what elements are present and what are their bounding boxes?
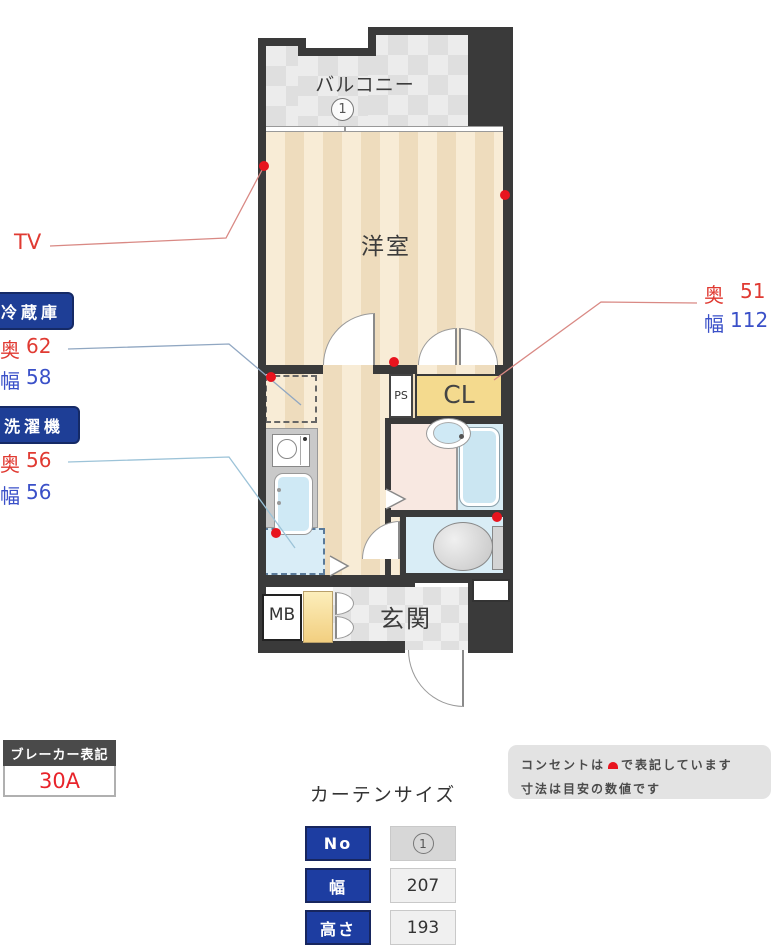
curtain-row-width: 幅 207 xyxy=(305,868,456,903)
width-label: 幅 xyxy=(0,480,26,509)
closet-depth-row: 奥 51 xyxy=(704,279,765,308)
depth-value: 56 xyxy=(26,448,51,477)
legend-note-box: コンセントはで表記しています 寸法は目安の数値です xyxy=(508,745,771,799)
depth-label: 奥 xyxy=(0,448,26,477)
pointer-line-closet xyxy=(494,302,697,380)
width-label: 幅 xyxy=(0,365,26,394)
fridge-depth-row: 奥 62 xyxy=(0,334,51,363)
breaker-table: ブレーカー表記 30A xyxy=(3,740,116,797)
depth-label: 奥 xyxy=(0,334,26,363)
living-room-label: 洋室 xyxy=(336,227,436,261)
outlet-icon xyxy=(271,528,281,538)
pipe-shaft-label: PS xyxy=(389,389,413,402)
pointer-line-tv xyxy=(50,170,262,246)
curtain-table-title: カーテンサイズ xyxy=(300,780,466,807)
wall xyxy=(400,515,406,575)
fridge-space-dashed-box xyxy=(265,375,317,423)
curtain-row-no: No 1 xyxy=(305,826,456,861)
meter-box-label: MB xyxy=(262,605,302,625)
curtain-no-header: No xyxy=(305,826,371,861)
depth-label: 奥 xyxy=(704,279,730,308)
wall xyxy=(385,418,391,490)
curtain-width-header: 幅 xyxy=(305,868,371,903)
breaker-value: 30A xyxy=(3,766,116,797)
vanity-faucet-icon xyxy=(459,434,464,439)
curtain-height-header: 高さ xyxy=(305,910,371,945)
tv-label: TV xyxy=(14,230,41,254)
washer-badge: 洗濯機 xyxy=(0,406,80,444)
legend-line-1: コンセントはで表記しています xyxy=(521,753,758,777)
wall xyxy=(298,48,376,56)
curtain-width-cell: 207 xyxy=(390,868,456,903)
outlet-icon xyxy=(608,762,618,769)
closet-label: CL xyxy=(415,380,503,409)
outlet-icon xyxy=(389,357,399,367)
wall xyxy=(495,365,503,374)
width-value: 112 xyxy=(730,308,768,337)
breaker-title: ブレーカー表記 xyxy=(3,740,116,766)
washer-depth-row: 奥 56 xyxy=(0,448,51,477)
shoe-cabinet xyxy=(303,591,333,643)
balcony-window-divider xyxy=(344,126,346,132)
stove-knob-icon xyxy=(303,437,307,441)
curtain-row-height: 高さ 193 xyxy=(305,910,456,945)
balcony-curtain-number: 1 xyxy=(331,98,354,121)
kitchen-sink xyxy=(275,474,312,534)
width-label: 幅 xyxy=(704,308,730,337)
outlet-icon xyxy=(259,161,269,171)
entrance-door-arc xyxy=(408,650,464,707)
wall xyxy=(258,575,415,587)
width-value: 58 xyxy=(26,365,51,394)
entrance-label: 玄関 xyxy=(368,599,444,634)
stove-burner-icon xyxy=(277,439,297,459)
curtain-table: No 1 幅 207 高さ 193 xyxy=(305,826,456,951)
utility-box xyxy=(472,579,510,602)
curtain-height-cell: 193 xyxy=(390,910,456,945)
curtain-number: 1 xyxy=(413,833,434,854)
legend-line-2: 寸法は目安の数値です xyxy=(521,777,758,801)
depth-value: 51 xyxy=(740,279,765,308)
legend-line1-after: で表記しています xyxy=(621,758,733,772)
closet-width-row: 幅 112 xyxy=(704,308,768,337)
outlet-icon xyxy=(492,512,502,522)
fridge-badge: 冷蔵庫 xyxy=(0,292,74,330)
toilet-bowl xyxy=(433,522,493,571)
balcony-label: バルコニー xyxy=(290,70,440,97)
vanity-basin xyxy=(433,422,464,444)
curtain-no-cell: 1 xyxy=(390,826,456,861)
stove-divider xyxy=(300,436,301,465)
wall xyxy=(468,27,513,130)
outlet-icon xyxy=(500,190,510,200)
fridge-width-row: 幅 58 xyxy=(0,365,51,394)
outlet-icon xyxy=(266,372,276,382)
wall xyxy=(368,27,472,35)
wall xyxy=(258,38,266,653)
width-value: 56 xyxy=(26,480,51,509)
depth-value: 62 xyxy=(26,334,51,363)
floorplan-page: バルコニー 1 洋室 PS CL MB 玄関 TV 冷蔵庫 奥 62 幅 58 … xyxy=(0,0,778,951)
balcony-window xyxy=(266,126,503,132)
washer-width-row: 幅 56 xyxy=(0,480,51,509)
wall xyxy=(389,510,503,517)
legend-line1-before: コンセントは xyxy=(521,758,605,772)
